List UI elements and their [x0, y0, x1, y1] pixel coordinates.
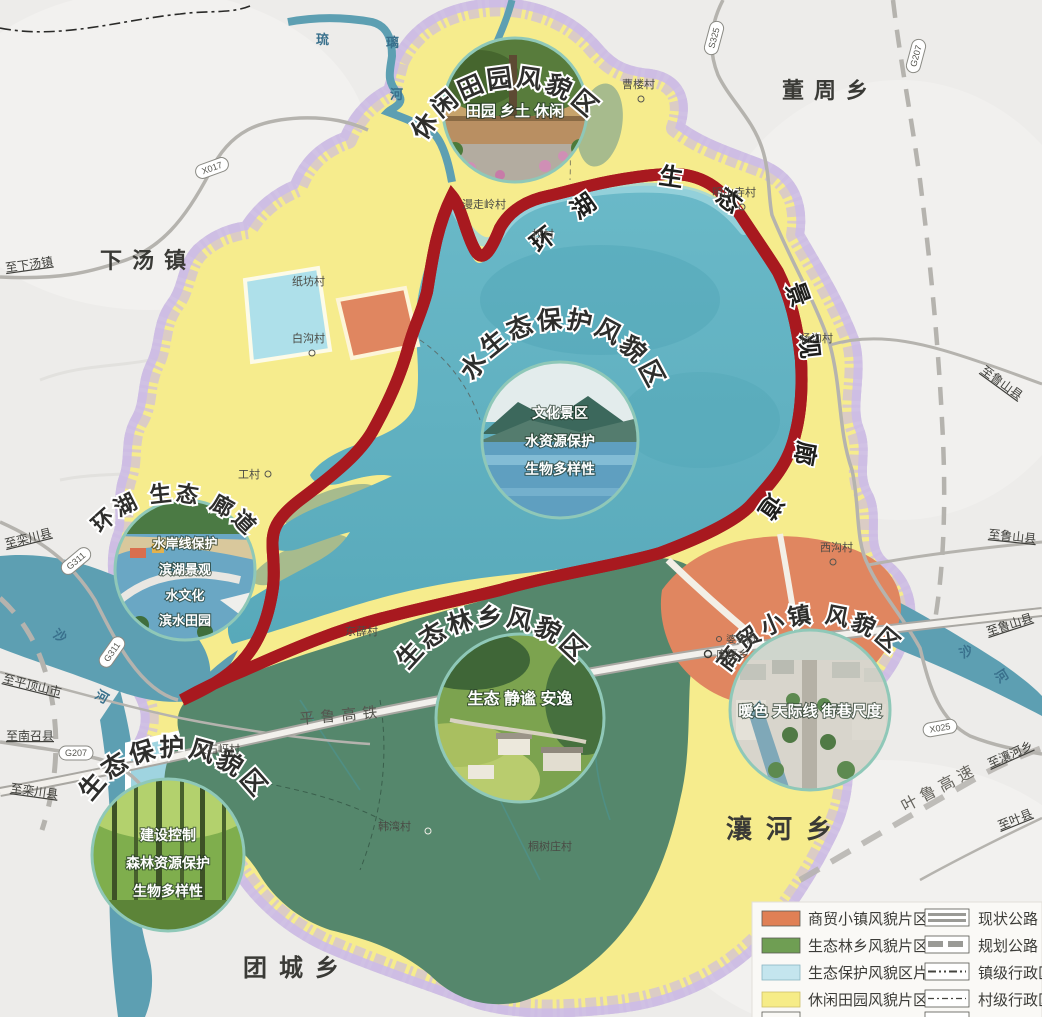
village-label: 权村 [532, 227, 554, 241]
river-char: 河 [390, 87, 403, 102]
village-label: 婆娑街 [726, 633, 756, 646]
legend-label: 村级行政区 [978, 992, 1042, 1009]
village-label: 明山寺村 [712, 185, 756, 199]
village-label: 杨沟村 [800, 331, 833, 345]
circle-line: 森林资源保护 [126, 855, 210, 871]
legend-label: 镇级行政区 [978, 965, 1042, 982]
legend-label: 生态保护风貌区片 [808, 965, 928, 982]
legend-swatch-protect [762, 965, 800, 980]
circle-line: 滨湖景观 [159, 562, 211, 577]
village-label: 曹楼村 [622, 77, 655, 91]
legend-label: 现状公路 [978, 911, 1038, 928]
circle-line: 建设控制 [140, 827, 196, 843]
legend: 商贸小镇风貌片区 生态林乡风貌片区 生态保护风貌区片 休闲田园风貌片区 现状公路… [752, 902, 1042, 1017]
circle-caption: 暖色 天际线 街巷尺度 [738, 702, 882, 720]
circle-caption: 生态 静谧 安逸 [468, 689, 573, 708]
river-char: 璃 [386, 35, 399, 50]
circle-line: 水岸线保护 [152, 536, 217, 551]
township-label: 下汤镇 [100, 248, 196, 273]
circle-line: 水资源保护 [525, 433, 595, 449]
road-badge: G207 [65, 748, 87, 758]
ring-char: 廊 [789, 439, 821, 467]
township-label: 瀼河乡 [726, 814, 846, 844]
legend-label: 休闲田园风貌片区 [808, 992, 928, 1009]
township-label: 董周乡 [782, 78, 878, 103]
township-label: 团城乡 [243, 954, 351, 982]
legend-swatch-leisure [762, 992, 800, 1007]
legend-label: 规划公路 [978, 938, 1038, 955]
circle-caption: 田园 乡土 休闲 [466, 102, 564, 120]
edge-label: 至南召县 [6, 728, 54, 743]
circle-line: 生物多样性 [133, 883, 203, 899]
ring-char: 生 [657, 163, 685, 193]
planning-map: 环 湖 生 态 景 观 廊 道 田园 乡土 休闲 休闲田园风貌区 [0, 0, 1042, 1017]
river-char: 琉 [316, 32, 329, 47]
village-label: 库区乡 [716, 648, 749, 661]
legend-label: 生态林乡风貌片区 [808, 938, 928, 955]
village-label: 韩湾村 [378, 819, 411, 833]
village-label: 桐树庄村 [528, 839, 572, 853]
village-label: 白沟村 [292, 331, 325, 345]
village-label: 漫走岭村 [462, 197, 506, 211]
circle-line: 滨水田园 [159, 613, 211, 628]
village-label: 工村 [238, 467, 260, 481]
legend-label: 商贸小镇风貌片区 [808, 911, 928, 928]
map-canvas: 环 湖 生 态 景 观 廊 道 田园 乡土 休闲 休闲田园风貌区 [0, 0, 1042, 1017]
village-label: 火石岈村 [196, 742, 240, 756]
circle-line: 水文化 [165, 588, 204, 603]
legend-sample-partial [925, 1012, 969, 1017]
legend-swatch-trade [762, 911, 800, 926]
village-label: 东薛村 [345, 624, 378, 638]
village-label: 纸坊村 [292, 274, 325, 288]
circle-line: 文化景区 [532, 405, 588, 421]
circle-line: 生物多样性 [525, 461, 595, 477]
village-label: 西沟村 [820, 540, 853, 554]
legend-swatch-forest [762, 938, 800, 953]
